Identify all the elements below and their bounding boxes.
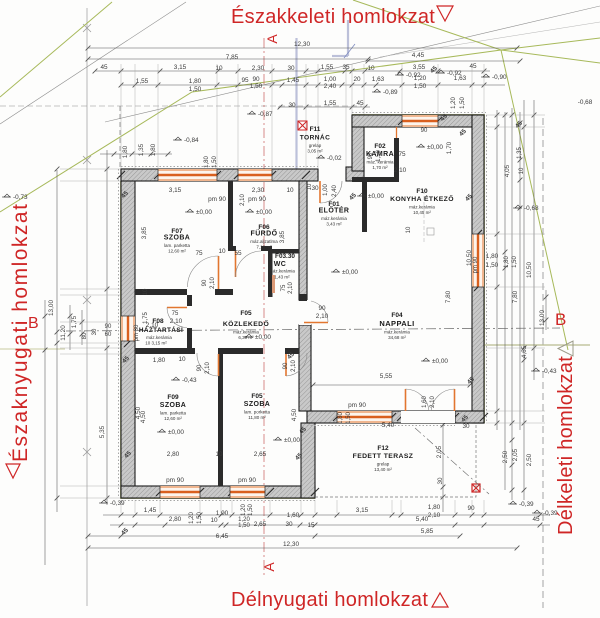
svg-text:1,60: 1,60 (422, 396, 428, 408)
svg-text:45: 45 (100, 64, 108, 71)
svg-text:2,10: 2,10 (428, 512, 441, 519)
svg-text:1,20: 1,20 (189, 512, 195, 524)
svg-text:1,55: 1,55 (321, 64, 334, 71)
svg-text:1,45: 1,45 (144, 507, 157, 514)
svg-text:KÖZLEKEDŐ: KÖZLEKEDŐ (223, 319, 269, 328)
svg-text:lam. parketta: lam. parketta (164, 243, 191, 248)
svg-text:20: 20 (353, 76, 361, 83)
svg-text:KONYHA ÉTKEZŐ: KONYHA ÉTKEZŐ (390, 194, 454, 203)
svg-text:12,60 m²: 12,60 m² (168, 249, 186, 254)
svg-text:1,20: 1,20 (241, 504, 247, 516)
svg-text:1,80: 1,80 (486, 253, 499, 260)
svg-text:grelap: grelap (309, 143, 322, 148)
svg-text:-0,90: -0,90 (492, 74, 507, 81)
svg-text:3,85: 3,85 (279, 230, 286, 243)
svg-text:45: 45 (356, 100, 364, 107)
svg-text:5,55: 5,55 (380, 373, 393, 380)
svg-text:SZOBA: SZOBA (160, 402, 187, 409)
svg-text:11,80 m²: 11,80 m² (248, 415, 266, 420)
svg-text:10: 10 (210, 517, 218, 524)
svg-text:Délkeleti homlokzat: Délkeleti homlokzat (555, 356, 577, 535)
svg-text:2,65: 2,65 (254, 521, 267, 528)
svg-text:1,50: 1,50 (346, 412, 352, 424)
svg-text:-0,87: -0,87 (258, 111, 273, 118)
svg-text:2,30: 2,30 (252, 187, 265, 194)
svg-text:pm 80: pm 80 (134, 324, 140, 341)
svg-text:1,20: 1,20 (451, 97, 457, 109)
svg-text:1,35: 1,35 (138, 143, 145, 156)
svg-text:5,35: 5,35 (99, 425, 106, 438)
svg-text:80: 80 (82, 332, 88, 339)
svg-text:12,30: 12,30 (294, 41, 310, 48)
svg-text:1,50: 1,50 (376, 150, 382, 162)
svg-text:-0,43: -0,43 (182, 377, 197, 384)
svg-text:1,50: 1,50 (189, 86, 202, 93)
svg-text:B: B (28, 315, 39, 332)
svg-text:1,50: 1,50 (197, 512, 203, 524)
svg-text:45: 45 (469, 63, 477, 70)
svg-text:máz.kerámia: máz.kerámia (269, 269, 295, 274)
svg-text:3,43 m²: 3,43 m² (326, 222, 342, 227)
svg-text:±0,00: ±0,00 (427, 144, 443, 151)
svg-text:1,50: 1,50 (212, 156, 218, 168)
svg-text:6,39 m²: 6,39 m² (238, 335, 254, 340)
svg-text:F02: F02 (374, 143, 386, 150)
svg-text:30: 30 (437, 477, 444, 485)
svg-text:1,80: 1,80 (204, 156, 210, 168)
svg-text:3,15: 3,15 (174, 64, 187, 71)
svg-text:1,50: 1,50 (460, 97, 466, 109)
svg-text:4,50: 4,50 (291, 408, 298, 421)
svg-text:13,00: 13,00 (48, 300, 55, 316)
svg-text:7,85: 7,85 (226, 54, 239, 61)
svg-text:30: 30 (92, 328, 98, 335)
svg-text:12,60 m²: 12,60 m² (164, 416, 182, 421)
svg-text:FEDETT TERASZ: FEDETT TERASZ (353, 453, 414, 460)
svg-text:1,45: 1,45 (287, 77, 300, 84)
svg-text:1,35: 1,35 (517, 147, 523, 159)
svg-text:12,30: 12,30 (283, 541, 299, 548)
svg-text:90: 90 (368, 152, 374, 159)
svg-text:-0,68: -0,68 (524, 205, 539, 212)
svg-text:75: 75 (281, 284, 287, 291)
svg-text:F09: F09 (167, 394, 179, 401)
svg-text:10: 10 (178, 356, 186, 363)
svg-text:1,63: 1,63 (372, 76, 385, 83)
svg-text:grelap: grelap (377, 462, 390, 467)
svg-text:2,40: 2,40 (324, 83, 337, 90)
svg-text:F05: F05 (251, 393, 263, 400)
svg-text:1,80: 1,80 (153, 357, 166, 364)
svg-text:1,80: 1,80 (150, 143, 157, 156)
svg-text:1,80: 1,80 (189, 78, 202, 85)
svg-text:1,80: 1,80 (428, 504, 441, 511)
svg-text:4,50: 4,50 (135, 406, 142, 419)
svg-text:SZOBA: SZOBA (244, 401, 271, 408)
svg-text:A: A (264, 34, 280, 44)
svg-text:F05: F05 (240, 310, 252, 317)
svg-text:±0,00: ±0,00 (432, 358, 448, 365)
svg-text:34,68 m²: 34,68 m² (388, 335, 406, 340)
svg-text:1,80: 1,80 (504, 256, 510, 268)
svg-text:90: 90 (202, 279, 208, 286)
svg-text:1,50: 1,50 (248, 504, 254, 516)
svg-text:±0,00: ±0,00 (255, 334, 271, 341)
svg-text:6,45: 6,45 (216, 533, 229, 540)
svg-text:10: 10 (307, 183, 313, 190)
svg-text:NAPPALI: NAPPALI (379, 319, 414, 328)
svg-text:-0,39: -0,39 (519, 501, 534, 508)
svg-text:90: 90 (467, 505, 475, 512)
svg-text:1,50: 1,50 (250, 83, 263, 90)
svg-text:10: 10 (218, 248, 226, 255)
svg-text:2,65: 2,65 (254, 451, 267, 458)
svg-text:10: 10 (215, 451, 223, 458)
svg-text:TORNÁC: TORNÁC (300, 133, 331, 142)
svg-text:1,55: 1,55 (324, 100, 337, 107)
svg-text:2,50: 2,50 (526, 453, 533, 466)
svg-text:lam. parketta: lam. parketta (160, 411, 187, 416)
svg-text:7,18 m²: 7,18 m² (256, 245, 272, 250)
svg-text:11,20: 11,20 (60, 325, 67, 341)
svg-text:F11: F11 (310, 126, 321, 133)
svg-text:1,00: 1,00 (324, 76, 337, 83)
svg-text:1,50: 1,50 (238, 523, 250, 529)
svg-text:3,05 m²: 3,05 m² (307, 149, 323, 154)
svg-text:pm 90: pm 90 (348, 402, 366, 409)
svg-text:2,10: 2,10 (291, 360, 297, 372)
svg-text:1,80: 1,80 (122, 145, 129, 158)
svg-text:3,15: 3,15 (169, 187, 182, 194)
svg-text:10: 10 (215, 65, 223, 72)
svg-text:2,10: 2,10 (210, 277, 216, 289)
svg-text:2,05: 2,05 (512, 448, 519, 461)
svg-text:1,63: 1,63 (454, 75, 467, 82)
svg-text:1,70 m²: 1,70 m² (372, 165, 388, 170)
svg-text:-0,39: -0,39 (110, 500, 125, 507)
svg-text:ELŐTÉR: ELŐTÉR (319, 206, 350, 215)
svg-text:2,80: 2,80 (167, 451, 180, 458)
svg-text:±0,00: ±0,00 (168, 429, 184, 436)
svg-text:2,10: 2,10 (430, 396, 436, 408)
svg-text:30: 30 (462, 423, 470, 430)
svg-text:SZOBA: SZOBA (164, 235, 191, 242)
svg-text:2,05: 2,05 (436, 445, 443, 458)
svg-text:4,45: 4,45 (412, 52, 425, 59)
svg-text:1,50: 1,50 (414, 83, 427, 90)
svg-text:F10: F10 (416, 188, 428, 195)
svg-text:10: 10 (367, 65, 375, 72)
svg-text:-0,89: -0,89 (383, 89, 398, 96)
svg-text:75: 75 (398, 151, 406, 158)
svg-text:1,60: 1,60 (287, 512, 300, 519)
svg-text:B: B (555, 310, 566, 329)
svg-text:2,30: 2,30 (252, 65, 265, 72)
svg-text:75: 75 (172, 311, 179, 317)
svg-text:90: 90 (283, 362, 289, 369)
svg-text:±0,00: ±0,00 (256, 209, 272, 216)
svg-text:30: 30 (287, 65, 295, 72)
svg-text:10: 10 (406, 226, 412, 233)
svg-text:pm 90: pm 90 (238, 477, 256, 484)
svg-text:55: 55 (234, 250, 242, 257)
svg-text:30: 30 (288, 102, 296, 109)
svg-text:F03.30: F03.30 (275, 253, 295, 260)
svg-text:-0,02: -0,02 (327, 155, 342, 162)
svg-text:máz.aljzatlma: máz.aljzatlma (250, 239, 278, 244)
svg-text:F12: F12 (377, 445, 389, 452)
svg-text:90: 90 (105, 324, 112, 330)
svg-text:10,50: 10,50 (466, 250, 473, 266)
svg-text:máz.kerámia: máz.kerámia (146, 335, 172, 340)
svg-text:1,80: 1,80 (338, 412, 344, 424)
svg-text:1,50: 1,50 (512, 256, 518, 268)
svg-text:45: 45 (532, 516, 540, 523)
svg-text:5,40: 5,40 (382, 422, 395, 429)
svg-text:Északkeleti homlokzat: Északkeleti homlokzat (231, 5, 435, 28)
svg-text:1,20: 1,20 (414, 75, 427, 82)
svg-text:5,85: 5,85 (421, 528, 434, 535)
svg-text:2,50: 2,50 (502, 450, 509, 463)
svg-text:WC: WC (274, 261, 286, 268)
svg-text:FÜRDŐ: FÜRDŐ (251, 229, 278, 238)
svg-text:10: 10 (519, 167, 525, 174)
svg-text:10: 10 (286, 187, 294, 194)
svg-text:Délnyugati homlokzat: Délnyugati homlokzat (231, 589, 428, 611)
svg-text:±0,00: ±0,00 (342, 269, 358, 276)
svg-text:2,10: 2,10 (394, 167, 407, 174)
svg-text:-0,84: -0,84 (184, 137, 199, 144)
svg-text:60: 60 (105, 332, 112, 338)
svg-text:-0,73: -0,73 (13, 194, 28, 201)
svg-text:10: 10 (143, 288, 149, 295)
svg-text:2,10: 2,10 (240, 194, 246, 206)
svg-text:90: 90 (421, 128, 428, 134)
svg-text:35: 35 (342, 64, 350, 71)
svg-text:1,70: 1,70 (446, 141, 453, 154)
svg-text:±0,00: ±0,00 (368, 193, 384, 200)
svg-text:máz.kerámia: máz.kerámia (409, 205, 435, 210)
svg-text:3,15: 3,15 (356, 507, 369, 514)
svg-text:90: 90 (197, 364, 203, 371)
svg-text:2,10: 2,10 (288, 282, 294, 294)
svg-text:1,55: 1,55 (136, 78, 149, 85)
svg-text:2,10: 2,10 (205, 362, 211, 374)
svg-text:máz.kerámia: máz.kerámia (321, 216, 347, 221)
svg-text:75: 75 (195, 250, 203, 257)
svg-text:15: 15 (307, 522, 315, 529)
svg-text:A: A (261, 562, 277, 572)
svg-text:2,10: 2,10 (170, 318, 183, 325)
svg-text:10 3,15 m²: 10 3,15 m² (145, 341, 167, 346)
svg-text:1,00: 1,00 (216, 510, 229, 517)
svg-text:lam. porketta: lam. porketta (244, 410, 271, 415)
svg-text:máz.kerámia: máz.kerámia (384, 330, 410, 335)
svg-text:10,50: 10,50 (526, 262, 533, 278)
svg-text:4,05: 4,05 (504, 164, 511, 177)
svg-text:pm 90: pm 90 (166, 477, 184, 484)
svg-text:13,40 m²: 13,40 m² (374, 467, 392, 472)
svg-text:2,80: 2,80 (169, 516, 182, 523)
svg-text:Északnyugati homlokzat: Északnyugati homlokzat (9, 203, 32, 462)
svg-text:pm 90: pm 90 (473, 256, 479, 273)
svg-text:2,10: 2,10 (146, 322, 159, 329)
svg-text:13,00: 13,00 (539, 310, 546, 326)
svg-text:95: 95 (241, 77, 249, 84)
svg-text:10,45 m²: 10,45 m² (413, 210, 431, 215)
svg-text:1,43 m²: 1,43 m² (274, 275, 290, 280)
svg-text:5,40: 5,40 (416, 516, 429, 523)
svg-text:3,85: 3,85 (141, 226, 148, 239)
svg-text:F04: F04 (391, 312, 403, 319)
svg-text:4,65: 4,65 (521, 345, 528, 358)
svg-text:1,00: 1,00 (323, 184, 329, 196)
svg-text:±0,00: ±0,00 (196, 209, 212, 216)
svg-text:1,75: 1,75 (71, 315, 78, 328)
svg-text:7,80: 7,80 (512, 290, 519, 303)
svg-text:±0,00: ±0,00 (284, 437, 300, 444)
svg-text:90: 90 (318, 305, 326, 312)
svg-text:-0,68: -0,68 (578, 99, 593, 106)
svg-text:30: 30 (285, 521, 293, 528)
svg-text:7,80: 7,80 (445, 290, 452, 303)
svg-text:pm 90: pm 90 (248, 196, 266, 203)
svg-text:pm 90: pm 90 (208, 196, 226, 203)
svg-text:2,10: 2,10 (316, 313, 329, 320)
svg-text:1,50: 1,50 (486, 262, 499, 269)
svg-text:2,40: 2,40 (332, 185, 338, 197)
svg-text:3,55: 3,55 (413, 64, 426, 71)
svg-text:90: 90 (252, 76, 260, 83)
